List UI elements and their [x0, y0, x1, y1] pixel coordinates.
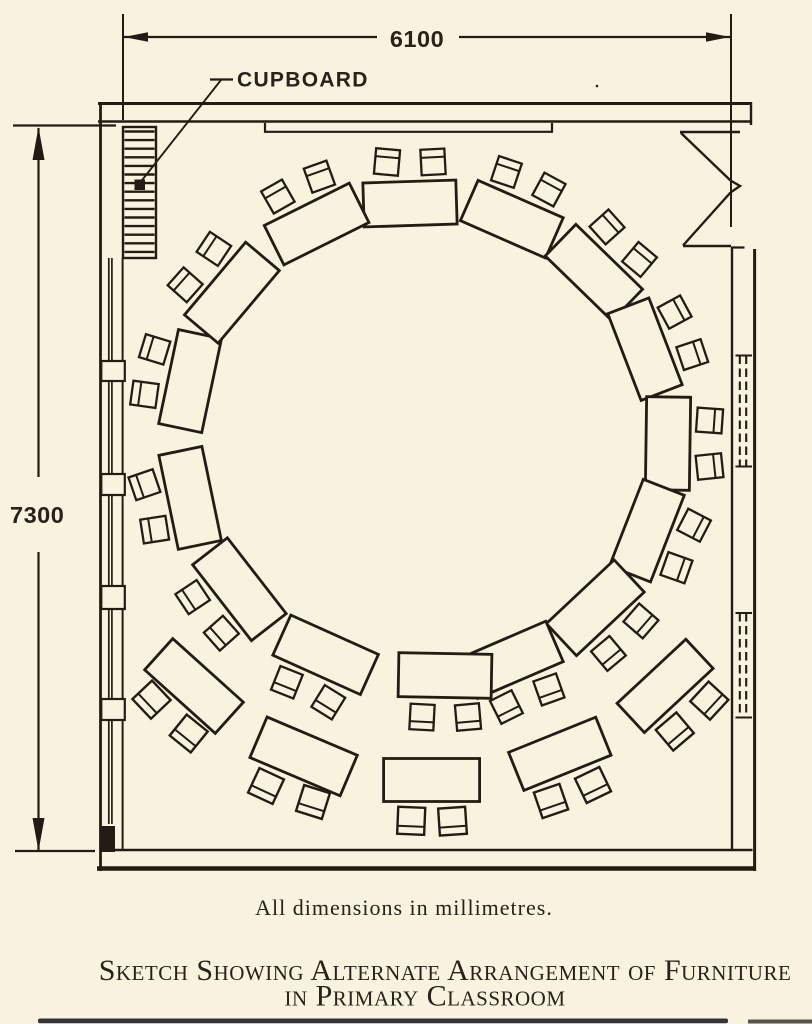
svg-text:All dimensions in millimetres.: All dimensions in millimetres. — [255, 895, 553, 920]
svg-text:in Primary Classroom: in Primary Classroom — [284, 980, 565, 1013]
svg-text:CUPBOARD: CUPBOARD — [237, 69, 369, 92]
svg-text:7300: 7300 — [10, 502, 64, 528]
svg-text:6100: 6100 — [390, 26, 444, 52]
